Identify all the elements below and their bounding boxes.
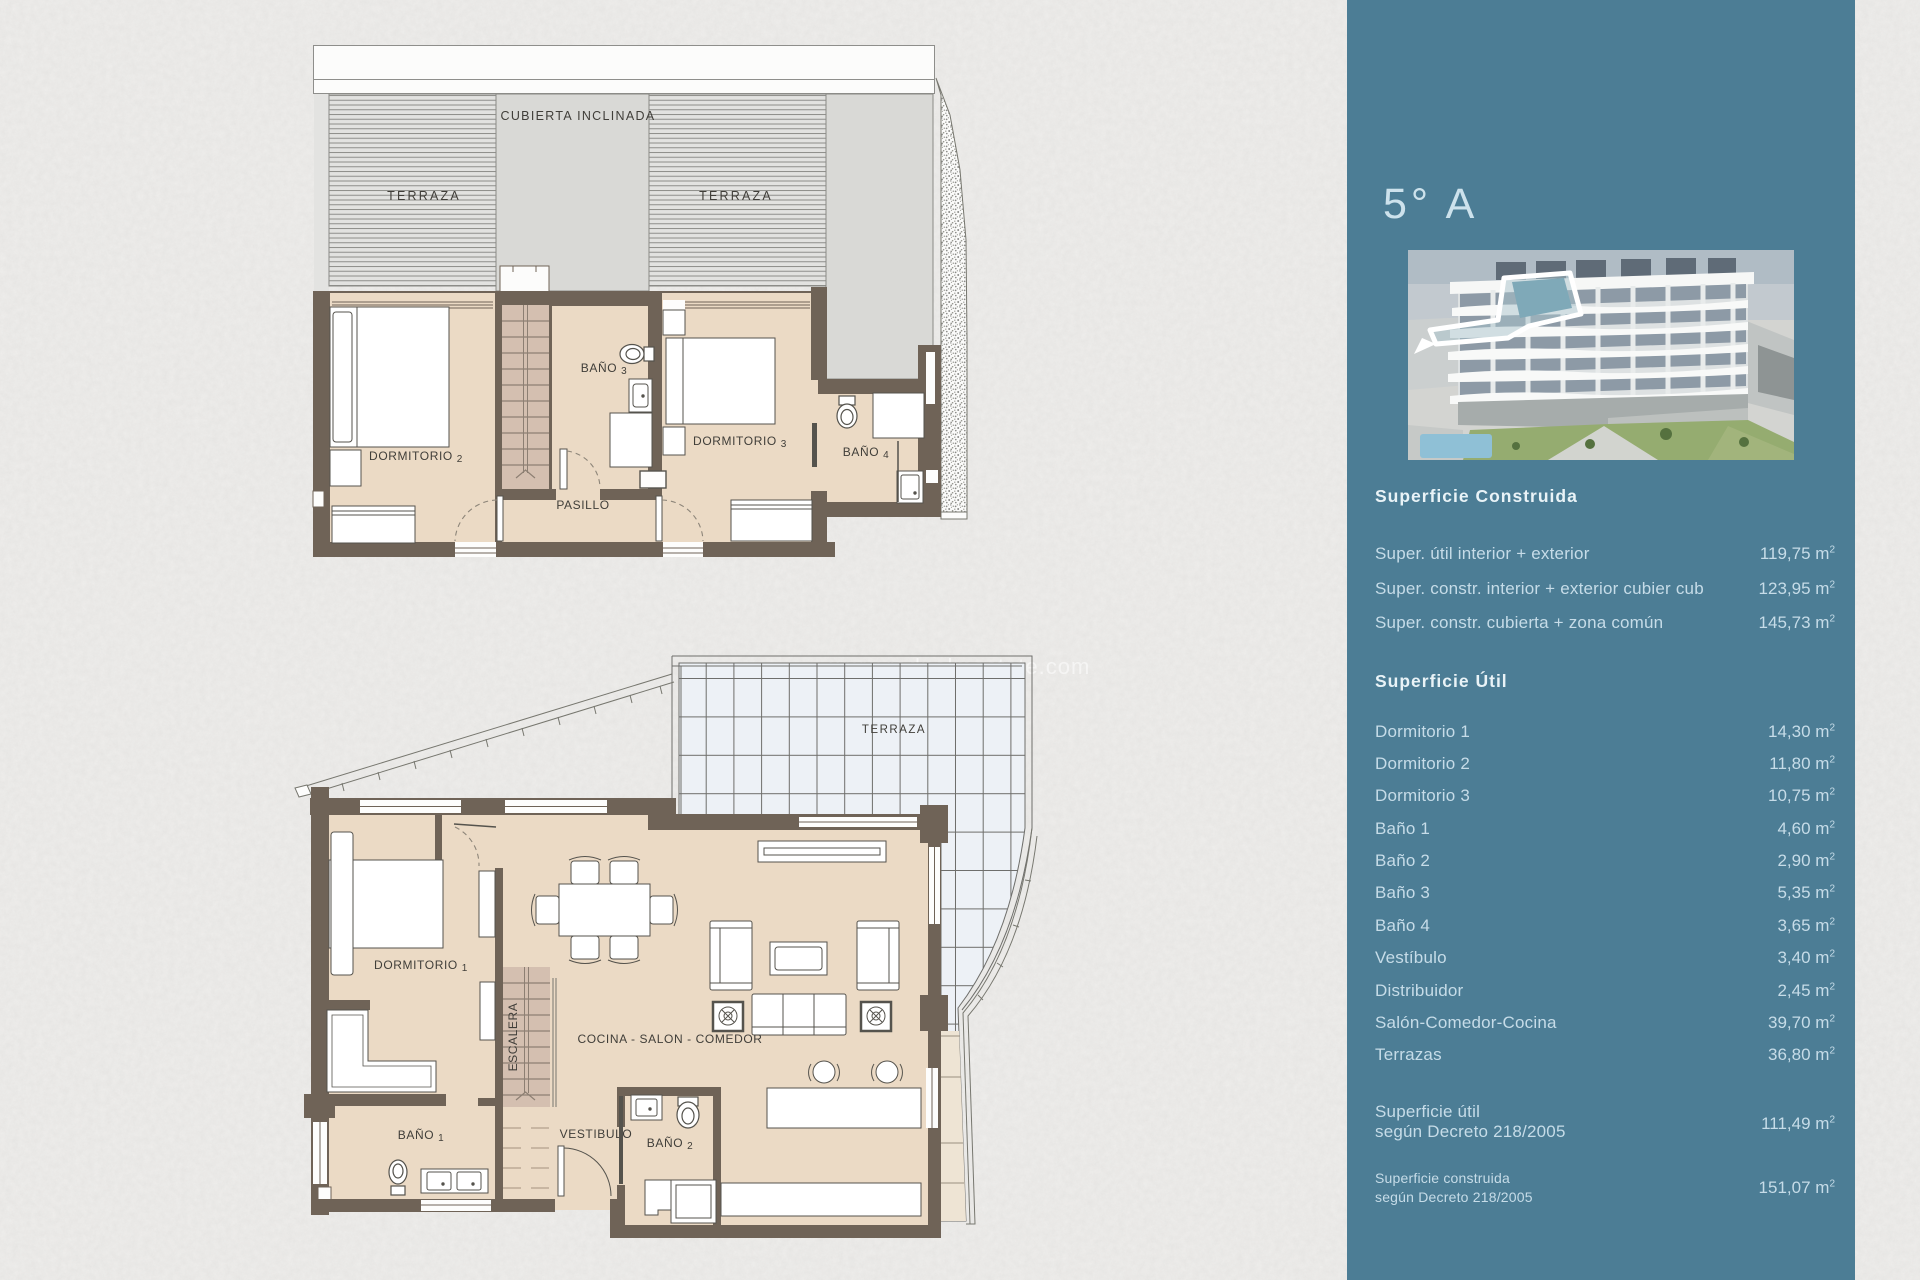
svg-text:TERRAZA: TERRAZA: [387, 189, 461, 203]
svg-text:ESCALERA: ESCALERA: [506, 1003, 520, 1072]
svg-text:DORMITORIO 2: DORMITORIO 2: [369, 449, 463, 465]
svg-text:TERRAZA: TERRAZA: [862, 724, 926, 736]
svg-text:TERRAZA: TERRAZA: [699, 189, 773, 203]
svg-text:BAÑO 2: BAÑO 2: [647, 1136, 694, 1152]
svg-text:COCINA - SALON - COMEDOR: COCINA - SALON - COMEDOR: [577, 1032, 762, 1046]
svg-text:PASILLO: PASILLO: [556, 498, 609, 512]
svg-text:BAÑO 3: BAÑO 3: [581, 361, 628, 377]
svg-text:DORMITORIO 1: DORMITORIO 1: [374, 958, 468, 974]
svg-text:BAÑO 4: BAÑO 4: [843, 445, 890, 461]
svg-text:CUBIERTA INCLINADA: CUBIERTA INCLINADA: [501, 109, 656, 123]
svg-text:DORMITORIO 3: DORMITORIO 3: [693, 434, 787, 450]
svg-text:BAÑO 1: BAÑO 1: [398, 1128, 445, 1144]
